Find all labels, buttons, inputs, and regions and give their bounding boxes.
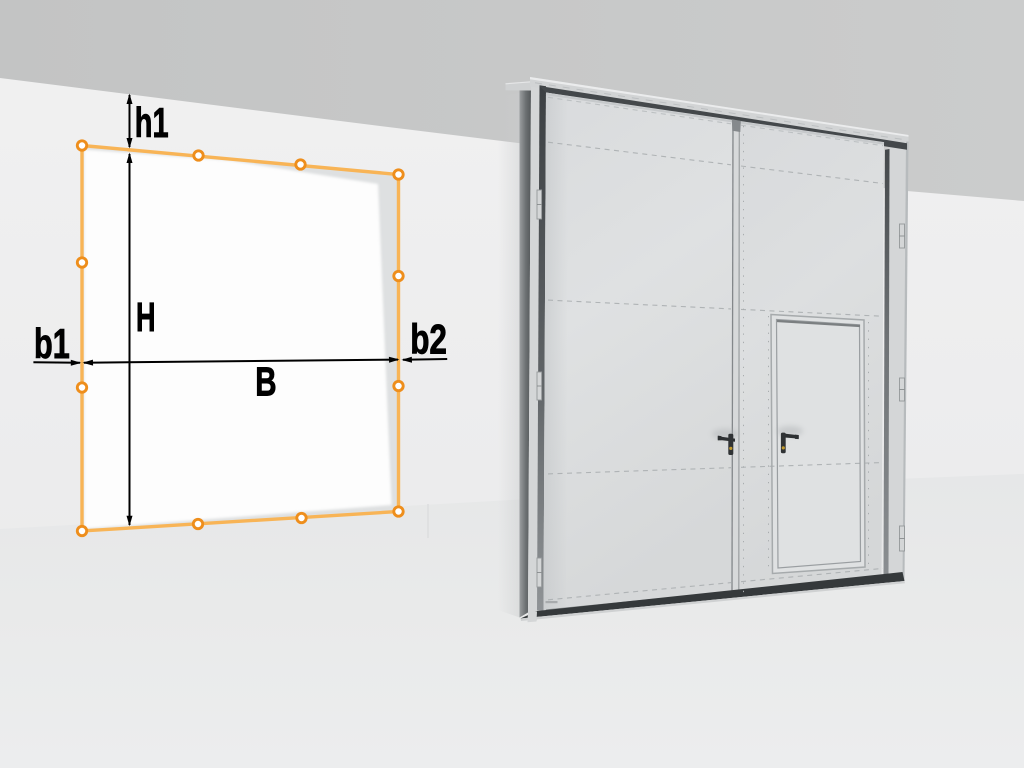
svg-text:h1: h1 [135,99,169,147]
svg-text:b1: b1 [34,320,70,367]
svg-text:B: B [255,359,276,405]
svg-text:H: H [136,296,156,341]
svg-text:b2: b2 [410,315,447,363]
